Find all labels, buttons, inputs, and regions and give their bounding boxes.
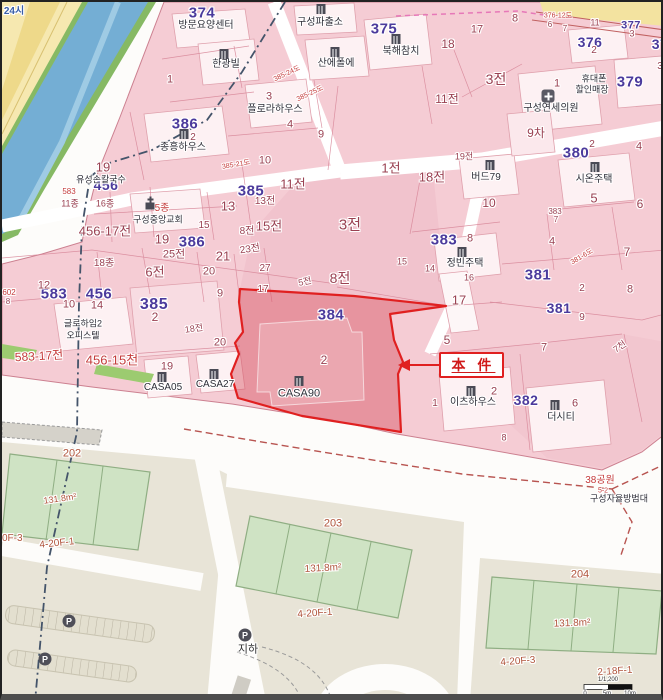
bldg-name: 구성중앙교회 — [133, 216, 183, 225]
map-label: 583 — [62, 188, 75, 196]
subject-label-text: 本 件 — [448, 355, 496, 375]
map-label: 376-12도 — [544, 13, 572, 20]
parking-icon-underground: P — [239, 629, 252, 642]
bldg-name: 플로라하우스 — [247, 105, 302, 115]
block-381-2: 381 — [547, 301, 572, 315]
scale-tick-5m: 5m — [603, 691, 611, 697]
map-label: 2 — [321, 354, 328, 366]
bldg-name: 구성자율방범대 — [590, 495, 648, 504]
map-label: 7 — [563, 25, 567, 33]
building-icon-itshouse — [467, 386, 476, 396]
map-label: 4-20F-1 — [297, 608, 333, 620]
map-label: 131.8m² — [304, 563, 341, 575]
building-icon-bird79 — [486, 160, 495, 170]
map-label: 15전 — [256, 220, 282, 233]
parking-label: 지하 — [238, 645, 258, 656]
map-label: 8 — [627, 285, 633, 296]
bldg-name: 구성파출소 — [297, 18, 343, 28]
building-icon-hangwangbil — [220, 49, 229, 59]
park-label: 38공원 — [585, 476, 615, 486]
map-label: 11종 — [61, 200, 79, 209]
map-label: 23전 — [239, 244, 261, 257]
map-label: 18전 — [184, 323, 203, 334]
map-label: 3 — [266, 92, 272, 103]
corner-24si: 24시 — [4, 7, 24, 17]
map-label: 4-20F-3 — [500, 656, 536, 668]
map-label: 19전 — [455, 153, 473, 162]
map-label: 11전 — [280, 178, 305, 191]
bldg-name: 글로하임2 — [64, 320, 102, 329]
block-378-clipped: 37 — [652, 37, 663, 51]
map-label: 5전 — [298, 276, 313, 288]
map-label: 10 — [482, 197, 495, 209]
map-label: 4 — [636, 142, 642, 153]
map-label: 9 — [579, 313, 585, 323]
map-label: 9 — [217, 289, 223, 300]
map-label: 9차 — [527, 127, 545, 139]
bldg-name: 정빈주택 — [447, 259, 484, 269]
map-label: 19 — [155, 233, 169, 246]
map-label: 456-17전 — [79, 225, 131, 238]
map-label: 8 — [467, 234, 473, 245]
map-label: 203 — [324, 519, 342, 530]
map-label: 204 — [571, 570, 589, 581]
bldg-name: 북해참치 — [383, 47, 420, 57]
building-icon-sion — [591, 162, 600, 172]
map-label: 2 — [579, 284, 585, 294]
map-label: 13전 — [255, 197, 275, 207]
map-label: 14 — [91, 301, 103, 312]
bldg-name: 이츠하우스 — [450, 398, 496, 408]
hospital-cross-icon — [542, 90, 555, 103]
scale-ratio: 1/1,200 — [598, 677, 618, 683]
building-icon-jeongbin — [458, 247, 467, 257]
map-label: 5 — [444, 334, 451, 346]
map-label: 5종 — [155, 204, 170, 214]
map-label: 7천 — [612, 340, 628, 355]
map-label: 18 — [441, 38, 454, 50]
map-label: 20 — [214, 338, 226, 349]
building-icon-casa27 — [210, 369, 219, 379]
map-label: 385-21도 — [221, 159, 250, 171]
map-label: 16종 — [96, 200, 114, 209]
map-label: 1 — [167, 75, 173, 86]
map-label: 3 — [657, 62, 663, 72]
map-label: 6전 — [145, 266, 164, 279]
map-label: 3 — [629, 30, 634, 39]
map-label: 8 — [512, 14, 518, 25]
building-icon-sanepole — [331, 47, 340, 57]
map-label: 4-20F-1 — [39, 537, 75, 551]
block-379: 379 — [617, 75, 644, 90]
map-label: 8전 — [240, 227, 255, 237]
subject-annotation-box: 本 件 — [439, 352, 504, 378]
map-label: 602 — [2, 289, 15, 297]
map-label: 17 — [471, 25, 483, 36]
block-384-subject: 384 — [318, 308, 345, 323]
bldg-name: 더시티 — [547, 413, 575, 423]
map-label: 6 — [637, 198, 644, 210]
map-label: 381-6도 — [570, 248, 595, 266]
map-label: 3전 — [339, 218, 361, 233]
map-label: 17 — [257, 285, 268, 295]
building-icon-bukhae — [392, 34, 401, 44]
building-icon-police — [317, 4, 326, 14]
map-label: 10 — [63, 300, 75, 311]
map-label: 20 — [203, 267, 215, 278]
map-label: 202 — [63, 449, 81, 460]
map-label: 21 — [216, 250, 230, 263]
map-label: 8전 — [330, 271, 351, 285]
map-label: 13 — [221, 200, 235, 213]
map-label: 18종 — [94, 259, 114, 269]
map-label: 1전 — [381, 162, 400, 175]
map-label: 456-15천 — [86, 354, 138, 367]
map-label: 7 — [554, 216, 558, 224]
map-label: 15 — [198, 221, 209, 231]
map-label: 2 — [591, 46, 597, 56]
map-label: 131.8m² — [553, 618, 590, 629]
bldg-name: 방문요양센터 — [178, 21, 233, 31]
map-label: 14 — [425, 265, 435, 274]
bldg-name: CASA27 — [196, 380, 234, 390]
map-label: 8 — [501, 434, 506, 443]
map-label: 10 — [259, 156, 271, 167]
block-376: 376 — [578, 35, 603, 49]
bldg-name: CASA05 — [144, 383, 182, 393]
block-381: 381 — [525, 268, 552, 283]
block-383: 383 — [431, 233, 458, 248]
block-374: 374 — [189, 6, 216, 21]
building-icon-casa05 — [158, 372, 167, 382]
map-label: 11 — [590, 19, 599, 28]
map-label: 385-24도 — [273, 65, 302, 83]
building-icon-thecity — [551, 400, 560, 410]
map-label: 6 — [548, 21, 552, 29]
map-label: 12 — [38, 281, 50, 292]
bldg-name: 휴대폰 — [582, 75, 607, 84]
map-label: 25전 — [163, 250, 185, 261]
bldg-name: 한광빌 — [212, 60, 240, 70]
map-label: 15 — [397, 258, 407, 267]
parking-icon-1: P — [63, 615, 76, 628]
bldg-name: 오피스텔 — [66, 332, 99, 341]
bldg-name: 버드79 — [471, 173, 501, 183]
block-386-2: 386 — [179, 235, 206, 250]
map-label: 583-17전 — [15, 349, 64, 364]
map-label: 2 — [491, 387, 497, 398]
map-label: 19 — [96, 161, 110, 174]
map-label: 6 — [572, 399, 578, 410]
map-label: 18전 — [419, 171, 445, 184]
building-icon-jongheung — [180, 129, 189, 139]
map-label: 385-25도 — [296, 85, 325, 103]
building-icon-casa90 — [295, 376, 304, 386]
map-label: 7 — [624, 246, 631, 258]
map-label: 2 — [589, 140, 595, 150]
bldg-name: 산에폴에 — [318, 59, 355, 69]
map-label: 5 — [590, 192, 597, 205]
map-label: 4 — [287, 120, 293, 131]
map-label: 1 — [554, 79, 560, 90]
parking-icon-2: P — [39, 653, 52, 666]
map-label: 4 — [549, 237, 555, 248]
block-380: 380 — [563, 146, 590, 161]
map-label: 1 — [432, 399, 438, 409]
bldg-name: 종흥하우스 — [160, 143, 206, 153]
map-label: 5-2 — [598, 488, 608, 495]
map-labels-layer: 3743753763773793738638538638545645658338… — [2, 2, 661, 694]
map-label: 17 — [452, 294, 466, 307]
map-label: 16 — [464, 274, 474, 283]
cadastral-map: 3743753763773793738638538638545645658338… — [0, 0, 663, 700]
bldg-name: 시온주택 — [576, 175, 613, 185]
parcel-4-20F-3-clipped: 4-20F-3 — [0, 534, 23, 544]
map-label: 2 — [152, 311, 159, 323]
map-label: 27 — [259, 264, 270, 274]
church-icon — [146, 203, 155, 210]
map-label: 9 — [318, 130, 324, 141]
block-382: 382 — [514, 393, 539, 407]
map-label: 11전 — [435, 93, 459, 105]
scale-tick-0: 0 — [583, 691, 586, 697]
bldg-name: 할인매장 — [575, 86, 608, 95]
map-label: 3전 — [486, 72, 507, 86]
bldg-name-subject: CASA90 — [278, 389, 320, 400]
bldg-name: 유성손칼국수 — [76, 176, 126, 185]
scale-tick-10m: 10m — [624, 691, 636, 697]
map-label: 7 — [541, 343, 547, 354]
map-label: 131.8m² — [43, 492, 77, 506]
map-label: 19 — [161, 362, 173, 373]
bldg-name: 구성연세의원 — [523, 104, 578, 114]
map-label: 8 — [6, 298, 10, 306]
